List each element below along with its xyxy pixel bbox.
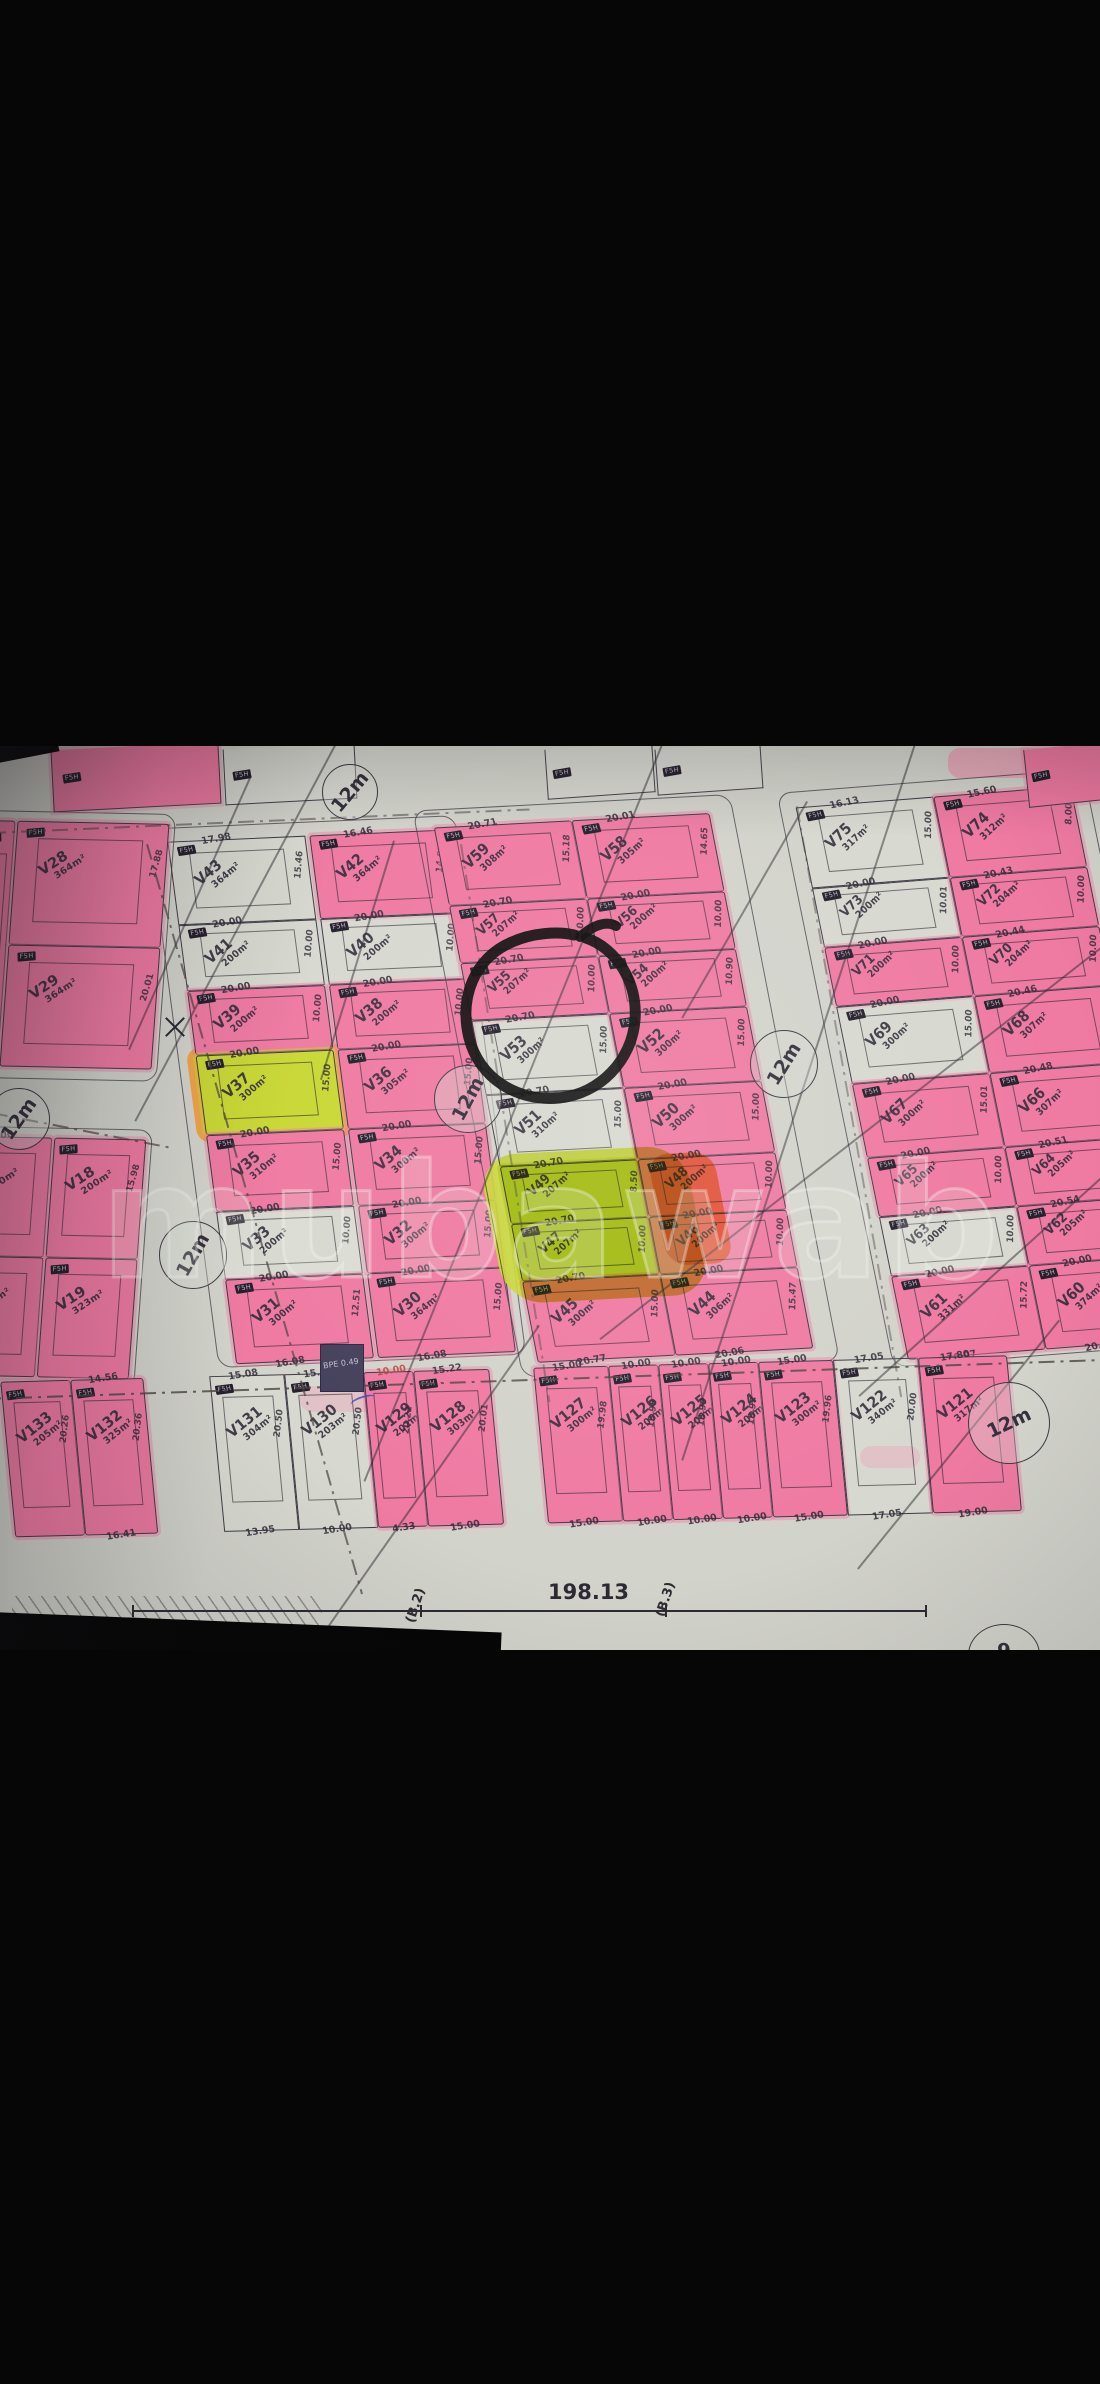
plot-side-dim: 15.00 — [492, 1282, 504, 1312]
plot-cell: F5HV65200m²20.0010.00 — [867, 1147, 1017, 1217]
image-viewer: F5HV43364m²17.9815.46F5HV41200m²20.0010.… — [0, 0, 1100, 2384]
plot-width-dim: 15.00 — [551, 1359, 583, 1374]
block-bottom-row: F5HV133205m²20.26F5HV132325m²14.5616.412… — [0, 1328, 1100, 1593]
plot-side-dim: 12.51 — [350, 1288, 362, 1318]
plot-chip: F5H — [553, 767, 572, 779]
road-width-label: 12m — [327, 767, 374, 817]
road-width-label: 12m — [172, 1229, 214, 1280]
plot-cell: F5HV59308m²20.7115.18 — [434, 820, 587, 906]
plot-bottom-dim: 13.95 — [245, 1524, 277, 1539]
top-black-band — [0, 0, 1100, 746]
plot-side-dim: 10.00 — [775, 1217, 786, 1246]
plot-side-dim: 10.90 — [724, 956, 735, 985]
top-partial-plot: F5H — [544, 746, 655, 800]
top-partial-plot: F5H — [50, 746, 221, 812]
plot-width-dim: 17.05 — [853, 1351, 885, 1366]
plot-cell: F5HV64205m²20.5110.00 — [1005, 1136, 1100, 1206]
plot-width-dim: 14.56 — [87, 1371, 119, 1386]
plot-side-dim: 10.00 — [713, 899, 724, 928]
plot-chip: F5H — [60, 1144, 78, 1154]
plot-side-dim: 8.00 — [1064, 803, 1074, 826]
plot-width-dim: 15.22 — [431, 1362, 463, 1377]
plot-chip: F5H — [1031, 770, 1050, 783]
boundary-mark: (B.3) — [653, 1580, 678, 1619]
plot-cell: F5HV35310m²20.0015.00 — [206, 1129, 354, 1212]
bottom-edge-circle: 9 — [968, 1624, 1040, 1650]
plot-width-dim: 16.46 — [342, 825, 374, 841]
plot-side-dim: 20.00 — [906, 1392, 919, 1422]
boundary-mark: (B.2) — [403, 1586, 428, 1625]
plot-side-dim: 15.00 — [751, 1092, 762, 1121]
cadastral-plan-photo: F5HV43364m²17.9815.46F5HV41200m²20.0010.… — [0, 746, 1100, 1650]
plot-side-dim: 10.00 — [303, 929, 315, 959]
plot-cell: F5HV66307m²20.4815.00 — [989, 1062, 1100, 1147]
plot-width-dim: 15.00 — [776, 1353, 808, 1368]
plot-cell: F5HV72204m²20.4310.00 — [950, 867, 1100, 937]
plot-cell: F5HV58305m²20.0114.65 — [572, 813, 725, 899]
plot-width-dim: 17.98 — [200, 831, 232, 847]
boundary-dimension-line — [132, 1610, 927, 1612]
road-width-circle: 12m — [750, 1030, 818, 1098]
plot-width-dim: 10.00 — [670, 1356, 702, 1371]
plot-side-dim: 15.00 — [923, 811, 933, 840]
plot-width-dim: 10.00 — [375, 1363, 407, 1378]
plot-cell: F5HV39200m²20.0010.00 — [187, 985, 333, 1056]
road-width-circle: 12m — [322, 764, 378, 820]
plot-side-dim: 10.00 — [764, 1160, 775, 1189]
plot-bottom-dim: 16.41 — [105, 1527, 137, 1542]
plot-bottom-dim: 15.00 — [794, 1509, 826, 1524]
plot-chip: F5H — [0, 833, 1, 843]
plot-bottom-dim: 15.00 — [449, 1518, 481, 1533]
x-pen-mark — [162, 1014, 188, 1040]
boundary-total-label: 198.13 — [548, 1580, 629, 1604]
plot-cell: F5HV32300m²20.0015.00 — [358, 1200, 505, 1273]
plot-width-dim: 16.13 — [828, 795, 861, 812]
highlight-circle-annotation — [440, 904, 670, 1124]
plot-cell: F5HV132325m²14.5616.4120.36 — [70, 1378, 158, 1536]
top-partial-plot: F5H — [1023, 746, 1100, 808]
plot-side-dim: 10.00 — [1076, 875, 1086, 904]
bottom-black-band — [0, 1650, 1100, 2384]
plot-width-dim: 10.00 — [620, 1357, 652, 1372]
plot-side-dim: 15.00 — [331, 1142, 343, 1172]
plot-width-dim: 17.80 — [939, 1349, 971, 1364]
plot-width-dim: 15.08 — [227, 1367, 259, 1382]
plot-side-dim: 10.00 — [951, 945, 961, 974]
plot-side-dim: 15.00 — [964, 1009, 974, 1038]
plot-chip: F5H — [539, 1375, 559, 1386]
plot-side-dim: 15.72 — [1019, 1281, 1029, 1310]
plot-bottom-dim: 19.00 — [957, 1505, 989, 1520]
plot-chip: F5H — [76, 1387, 96, 1398]
plot-chip: F5H — [663, 765, 682, 777]
plot-side-dim: 10.00 — [341, 1216, 353, 1246]
plot-cell: F5HV16200m²20.00 — [0, 1136, 52, 1258]
plot-cell: F5HV18200m²15.98 — [46, 1138, 147, 1260]
plot-side-dim: 15.00 — [736, 1018, 747, 1047]
plot-width-dim: 20.71 — [466, 817, 499, 833]
plot-cell: F5HV34300m²20.0015.00 — [348, 1123, 496, 1206]
plot-side-dim: 15.00 — [473, 1135, 485, 1165]
plot-width-dim: 10.00 — [720, 1354, 752, 1369]
road-width-label: 12m — [0, 1094, 41, 1145]
plot-width-dim: 15.60 — [965, 784, 998, 801]
plot-cell: F5HV28364m²17.88 — [8, 821, 169, 948]
road-width-label: 12m — [762, 1039, 805, 1090]
plot-cell: F5HV29364m²20.01 — [0, 945, 160, 1070]
plot-side-dim: 15.47 — [788, 1281, 799, 1310]
plot-bottom-dim: 10.00 — [637, 1514, 669, 1529]
plot-bottom-dim: 10.00 — [737, 1511, 769, 1526]
plot-side-dim: 15.46 — [293, 850, 305, 880]
plot-bottom-dim: 10.00 — [687, 1512, 719, 1527]
plot-side-dim: 10.00 — [1006, 1215, 1016, 1244]
plot-side-dim: 10.00 — [312, 994, 324, 1024]
plot-cell: F5HV33200m²20.0010.00 — [216, 1206, 363, 1279]
bpe-box: BPE 0.49 — [320, 1344, 364, 1392]
plot-bottom-dim: 10.00 — [321, 1522, 353, 1537]
plot-side-dim: 10.01 — [939, 886, 949, 915]
road-width-label: 12m — [983, 1403, 1034, 1442]
plot-cell: F5HV73200m²20.0010.01 — [812, 878, 962, 948]
plot-chip: F5H — [62, 772, 81, 784]
road-width-circle: 12m — [159, 1221, 227, 1289]
plot-side-dim: 15.18 — [561, 833, 572, 862]
plot-chip: F5H — [17, 951, 35, 961]
plot-cell: F5HV63200m²20.0010.00 — [879, 1207, 1029, 1277]
road-width-circle: 12m — [968, 1382, 1050, 1464]
plot-side-dim: 10.00 — [994, 1155, 1004, 1184]
bpe-label: BPE 0.49 — [323, 1357, 360, 1371]
plot-side-dim: 20.01 — [138, 972, 156, 1002]
top-partial-plot: F5H — [655, 746, 764, 796]
plot-chip: F5H — [51, 1264, 69, 1274]
plot-cell: F5HV41200m²20.0010.00 — [178, 919, 324, 990]
plot-side-dim: 14.65 — [699, 826, 710, 855]
plot-cell: F5HV71200m²20.0010.00 — [824, 937, 974, 1007]
plot-bottom-dim: 15.00 — [569, 1515, 601, 1530]
plot-side-dim: 15.01 — [979, 1085, 989, 1114]
